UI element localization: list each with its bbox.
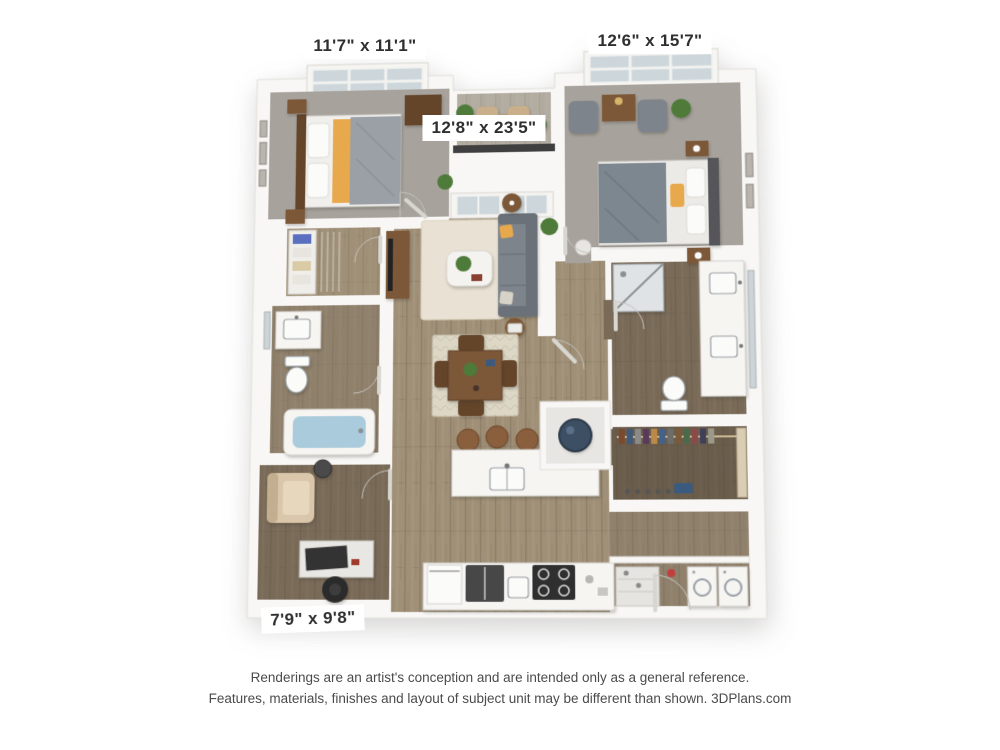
storage-bin: [674, 483, 693, 493]
bathtub: [284, 409, 375, 455]
dining-area: [432, 334, 518, 416]
dining-chair: [458, 399, 484, 416]
dimension-label-bedroom-2: 12'6" x 15'7": [588, 28, 711, 54]
toilet-master: [661, 376, 688, 410]
shower: [613, 264, 664, 312]
bed-1: [295, 112, 401, 209]
washer: [688, 567, 717, 606]
monitor: [305, 546, 348, 571]
den-armchair: [267, 473, 315, 523]
nightstand: [285, 209, 305, 224]
dimension-label-den: 7'9" x 9'8": [261, 604, 365, 634]
sink: [283, 319, 310, 339]
armchair: [568, 101, 598, 134]
barstool: [516, 429, 538, 451]
nightstand: [287, 99, 306, 114]
dimension-label-living-area: 12'8" x 23'5": [422, 115, 545, 141]
utility-closet: [540, 401, 611, 470]
toilet-2: [285, 356, 310, 393]
bed-2: [598, 158, 720, 247]
pantry: [616, 567, 659, 606]
vanity-2: [276, 311, 321, 349]
dining-table: [448, 350, 502, 400]
dimension-label-bedroom-1: 11'7" x 11'1": [304, 33, 425, 59]
desk: [299, 541, 373, 577]
cooktop: [532, 565, 575, 600]
disclaimer-line-1: Renderings are an artist's conception an…: [0, 667, 1000, 688]
barstool: [486, 426, 508, 448]
laptop: [508, 324, 522, 333]
dining-chair: [458, 335, 484, 352]
mirror: [264, 312, 271, 349]
dining-chair: [501, 360, 517, 387]
side-table: [314, 460, 332, 478]
armchair: [637, 99, 667, 132]
floor-plan-page: 11'7" x 11'1" 12'6" x 15'7" 12'8" x 23'5…: [0, 0, 1000, 750]
kitchen-counter: [423, 563, 614, 610]
coffee-table: [447, 251, 492, 287]
linens: [293, 234, 312, 244]
disclaimer-line-2: Features, materials, finishes and layout…: [0, 688, 1000, 709]
wall-art: [259, 121, 267, 186]
sofa: [498, 213, 538, 317]
sink: [711, 336, 738, 357]
sink: [710, 273, 737, 294]
barstool: [457, 429, 479, 451]
double-vanity: [699, 261, 746, 397]
dresser: [602, 94, 636, 121]
kitchen-sink: [508, 577, 528, 597]
bedroom-2-window: [584, 48, 719, 87]
closet-shelves: [737, 428, 747, 497]
media-console: [386, 231, 410, 299]
dryer: [718, 567, 748, 606]
disclaimer: Renderings are an artist's conception an…: [0, 667, 1000, 709]
